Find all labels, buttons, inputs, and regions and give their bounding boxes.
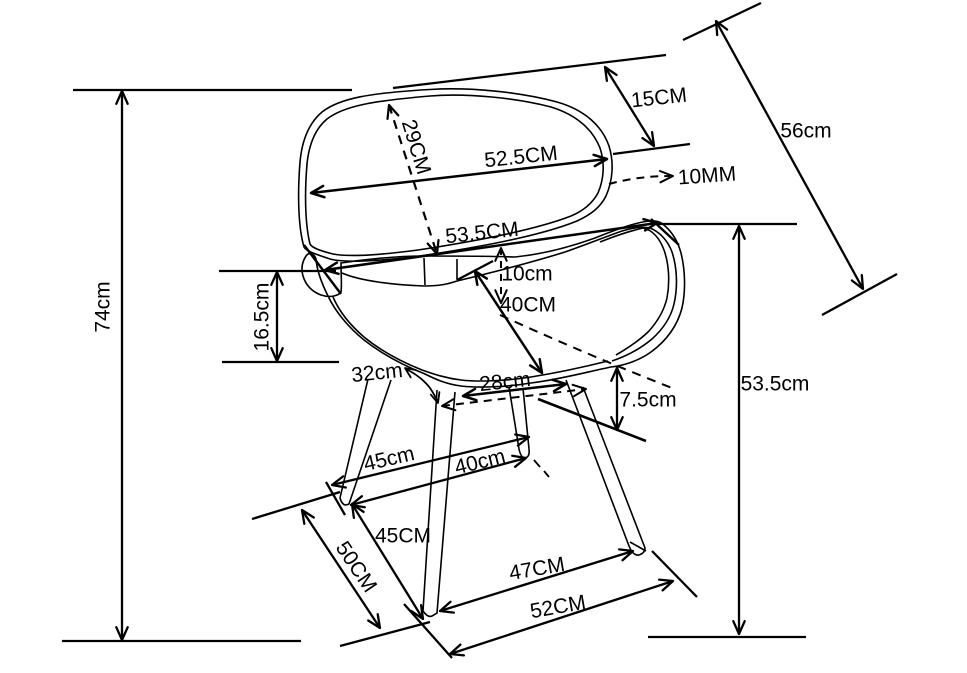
svg-text:10MM: 10MM	[677, 162, 737, 189]
svg-text:56cm: 56cm	[780, 120, 831, 143]
svg-text:53.5cm: 53.5cm	[741, 373, 810, 396]
svg-text:45CM: 45CM	[375, 525, 431, 548]
svg-text:40CM: 40CM	[500, 294, 556, 317]
svg-text:16.5cm: 16.5cm	[251, 283, 274, 352]
svg-text:7.5cm: 7.5cm	[619, 389, 676, 412]
svg-text:74cm: 74cm	[92, 281, 115, 332]
svg-text:10cm: 10cm	[501, 263, 552, 286]
